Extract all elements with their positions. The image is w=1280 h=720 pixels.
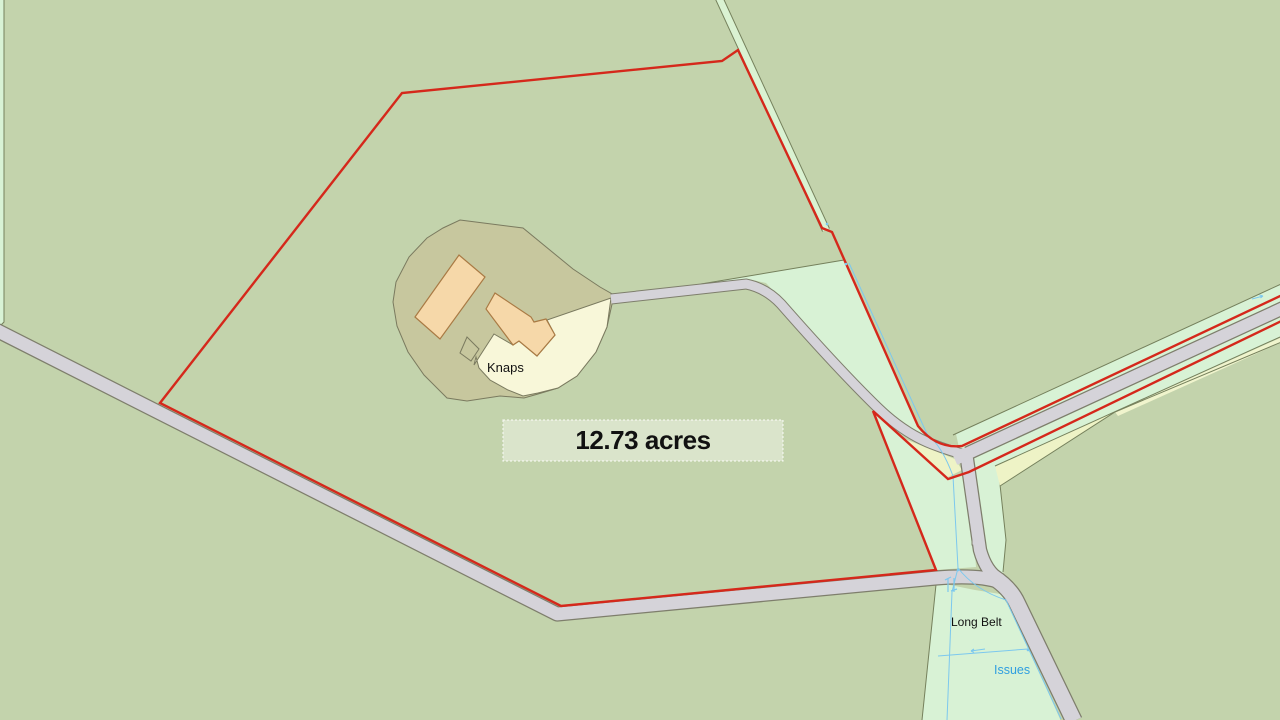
svg-text:Long Belt: Long Belt bbox=[951, 615, 1002, 629]
svg-text:Issues: Issues bbox=[994, 663, 1030, 677]
svg-text:Knaps: Knaps bbox=[487, 360, 524, 375]
svg-text:12.73 acres: 12.73 acres bbox=[575, 425, 710, 455]
